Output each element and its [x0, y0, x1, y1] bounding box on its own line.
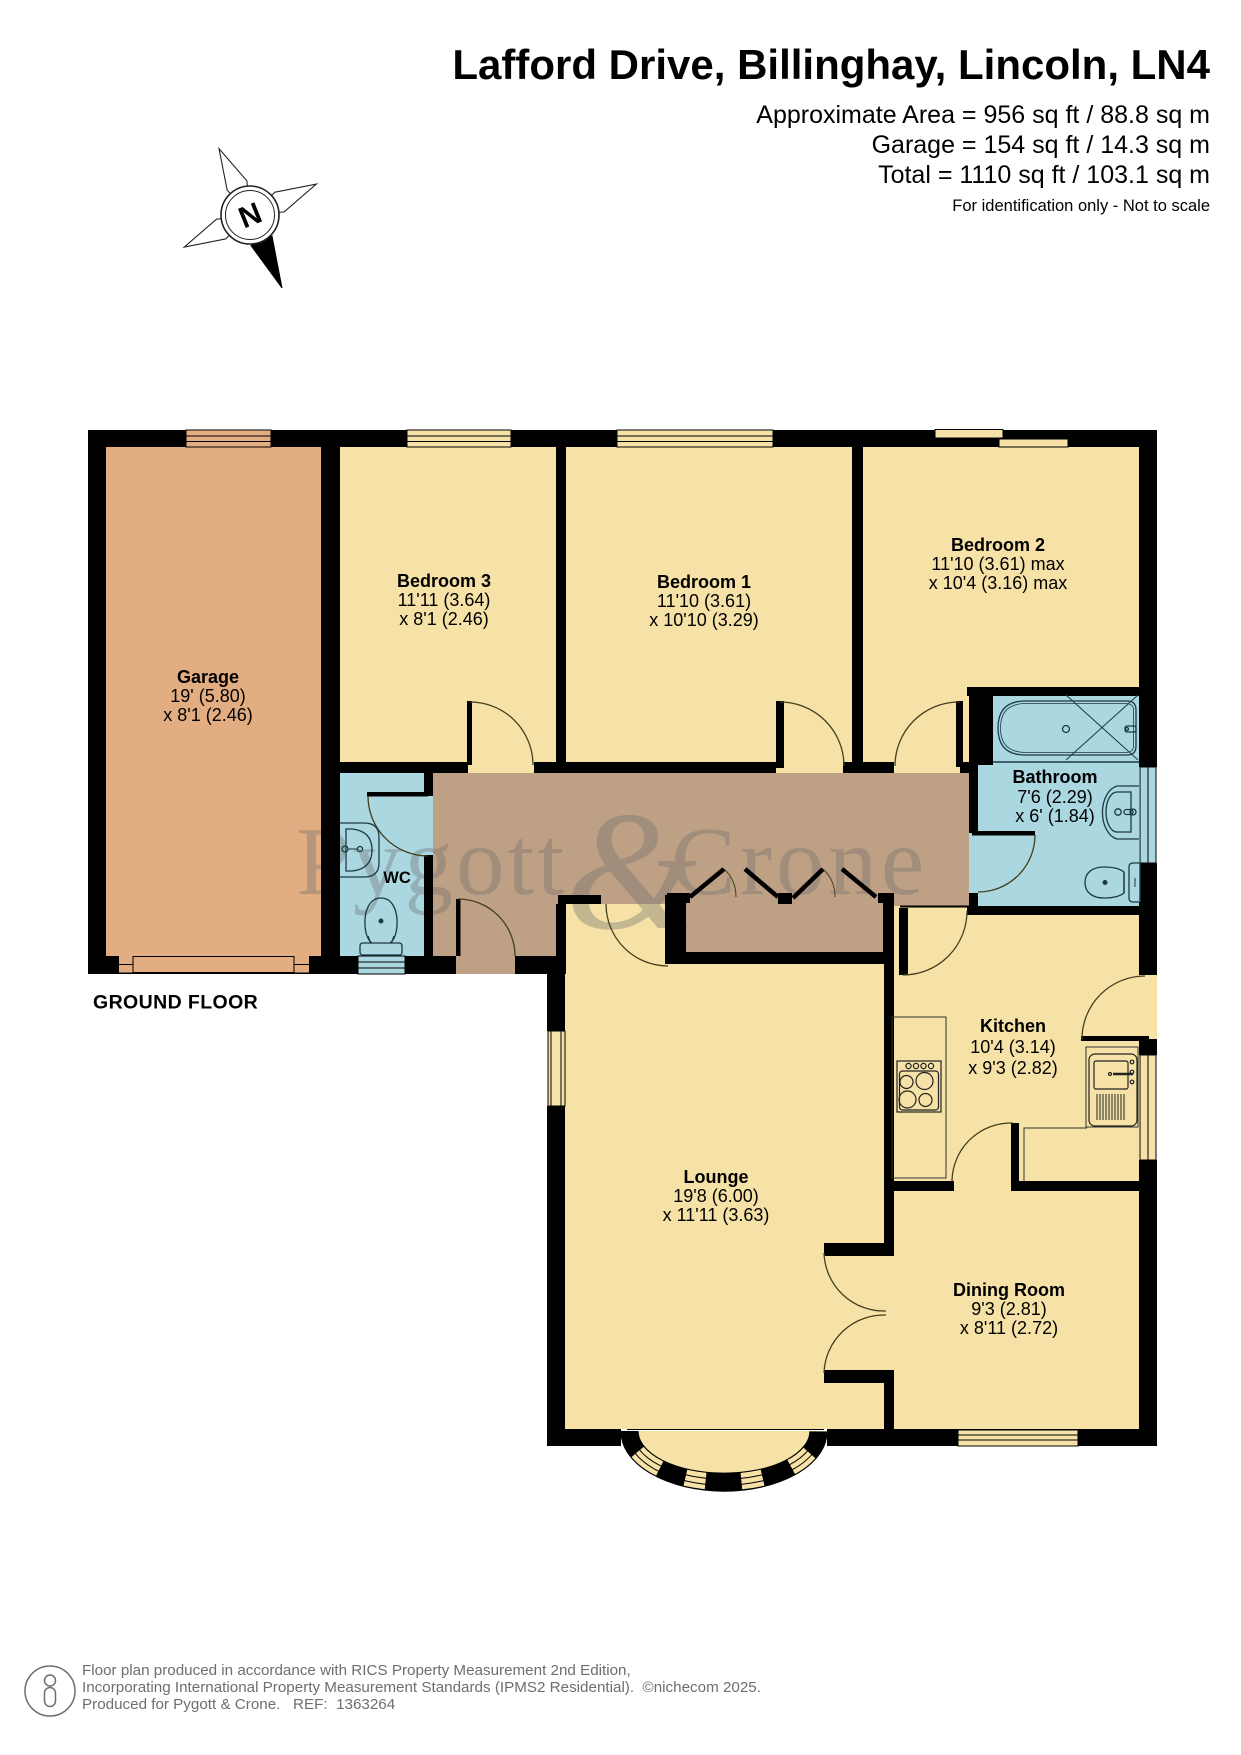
svg-text:Incorporating International Pr: Incorporating International Property Mea…	[82, 1679, 761, 1696]
svg-text:Bedroom 1: Bedroom 1	[657, 572, 751, 592]
svg-text:Total = 1110 sq ft / 103.1 sq: Total = 1110 sq ft / 103.1 sq m	[878, 161, 1210, 189]
svg-text:Lafford Drive, Billinghay, Lin: Lafford Drive, Billinghay, Lincoln, LN4	[452, 41, 1210, 88]
svg-text:x 9'3 (2.82): x 9'3 (2.82)	[968, 1058, 1057, 1078]
svg-text:Dining Room: Dining Room	[953, 1280, 1065, 1300]
svg-text:For identification only - Not: For identification only - Not to scale	[952, 197, 1210, 215]
svg-text:Lounge: Lounge	[684, 1167, 749, 1187]
svg-text:Approximate Area = 956 sq ft /: Approximate Area = 956 sq ft / 88.8 sq m	[756, 101, 1210, 129]
svg-text:x 10'4 (3.16) max: x 10'4 (3.16) max	[929, 573, 1068, 593]
svg-text:Bathroom: Bathroom	[1013, 767, 1098, 787]
svg-text:x 6' (1.84): x 6' (1.84)	[1015, 806, 1094, 826]
svg-text:x 8'1 (2.46): x 8'1 (2.46)	[163, 705, 252, 725]
svg-text:19'8 (6.00): 19'8 (6.00)	[673, 1186, 759, 1206]
svg-text:WC: WC	[383, 869, 411, 887]
svg-text:x 10'10 (3.29): x 10'10 (3.29)	[649, 610, 759, 630]
svg-text:Kitchen: Kitchen	[980, 1016, 1046, 1036]
svg-text:Garage: Garage	[177, 667, 239, 687]
svg-text:Garage = 154 sq ft / 14.3 sq m: Garage = 154 sq ft / 14.3 sq m	[872, 131, 1210, 159]
svg-text:x 8'11 (2.72): x 8'11 (2.72)	[960, 1318, 1058, 1338]
svg-text:Floor plan produced in accorda: Floor plan produced in accordance with R…	[82, 1662, 631, 1679]
svg-text:x 8'1 (2.46): x 8'1 (2.46)	[399, 609, 488, 629]
svg-text:11'10 (3.61): 11'10 (3.61)	[657, 591, 751, 611]
svg-text:Bedroom 3: Bedroom 3	[397, 571, 491, 591]
svg-text:19' (5.80): 19' (5.80)	[170, 686, 245, 706]
svg-text:11'10 (3.61) max: 11'10 (3.61) max	[931, 554, 1064, 574]
svg-text:9'3 (2.81): 9'3 (2.81)	[971, 1299, 1046, 1319]
svg-text:x 11'11 (3.63): x 11'11 (3.63)	[663, 1205, 770, 1225]
svg-text:11'11 (3.64): 11'11 (3.64)	[398, 590, 491, 610]
svg-text:10'4 (3.14): 10'4 (3.14)	[970, 1037, 1056, 1057]
svg-text:Bedroom 2: Bedroom 2	[951, 535, 1045, 555]
svg-text:GROUND FLOOR: GROUND FLOOR	[93, 992, 258, 1014]
svg-text:Produced for Pygott & Crone.: Produced for Pygott & Crone. REF: 136326…	[82, 1696, 395, 1713]
svg-text:7'6 (2.29): 7'6 (2.29)	[1017, 787, 1092, 807]
